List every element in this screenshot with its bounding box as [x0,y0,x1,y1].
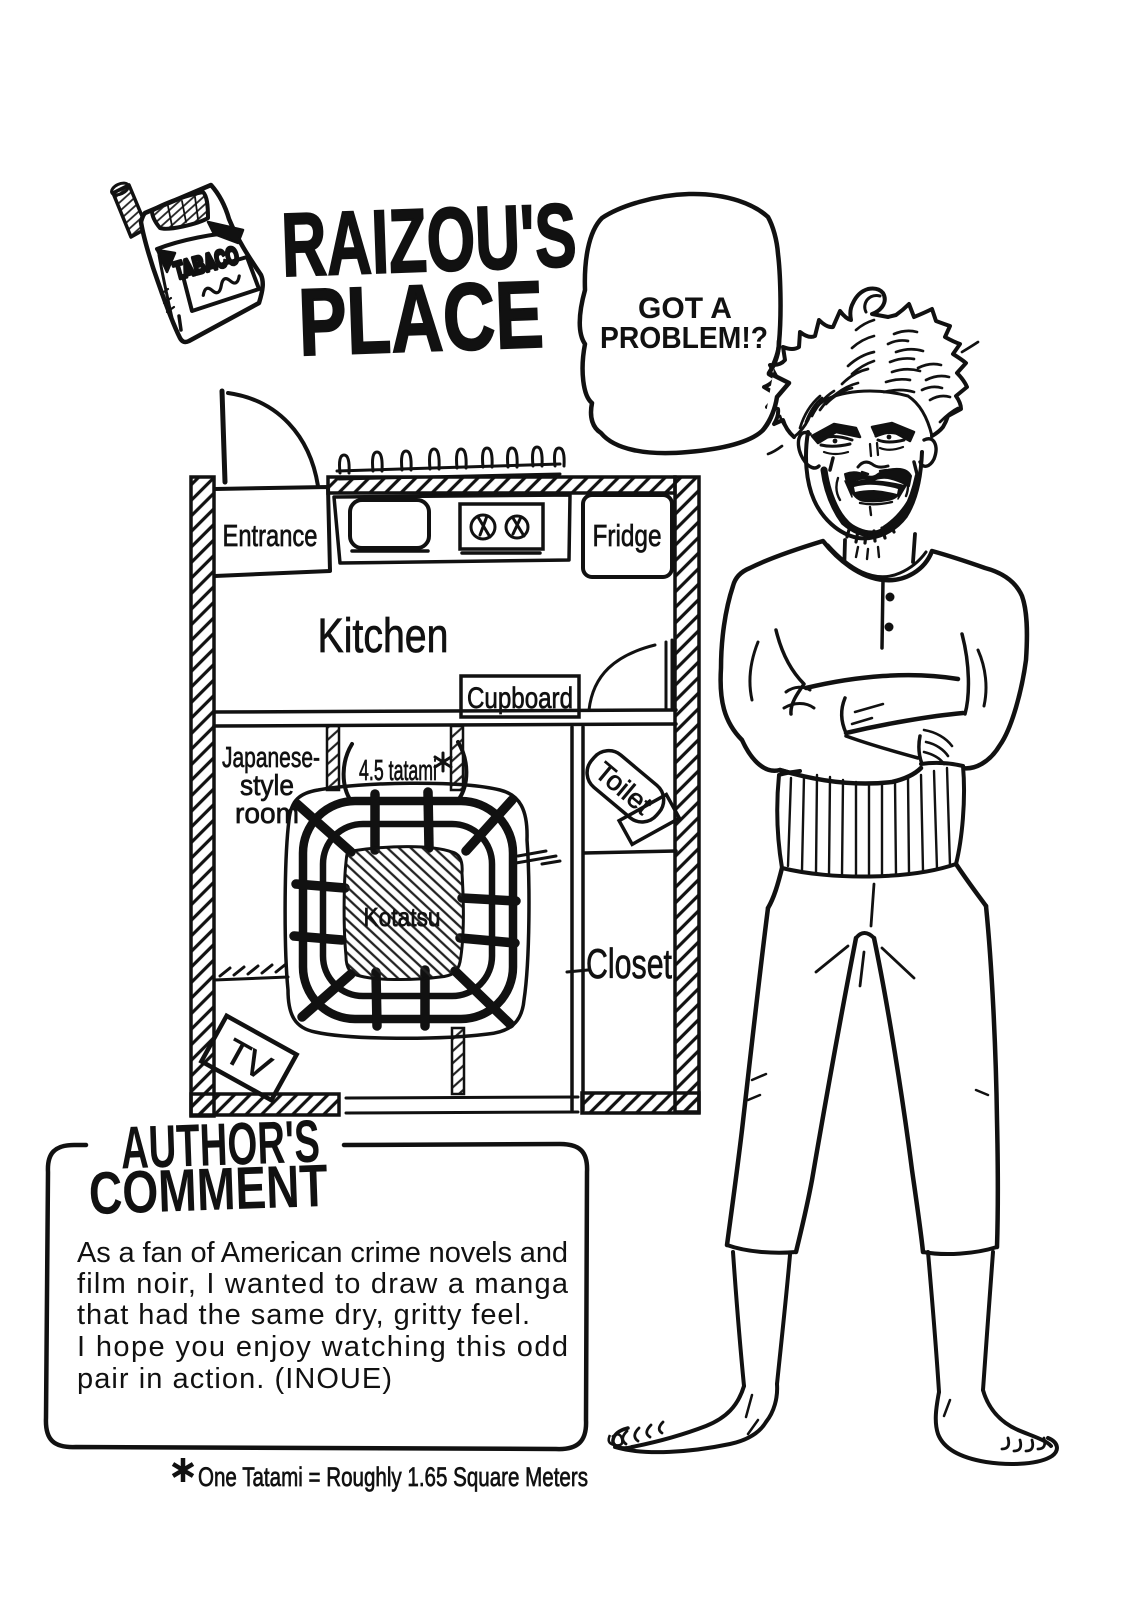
svg-text:Kotatsu: Kotatsu [364,902,441,932]
svg-text:One Tatami = Roughly 1.65 Squa: One Tatami = Roughly 1.65 Square Meters [198,1462,588,1492]
svg-text:PLACE: PLACE [297,262,546,376]
svg-text:Closet: Closet [586,940,672,987]
svg-text:I hope you enjoy watching this: I hope you enjoy watching this odd [77,1331,568,1363]
svg-text:pair in action. (INOUE): pair in action. (INOUE) [77,1363,392,1395]
svg-text:Entrance: Entrance [223,518,318,553]
svg-text:Kitchen: Kitchen [318,610,449,663]
svg-text:COMMENT: COMMENT [88,1152,329,1227]
svg-text:As a fan of American crime nov: As a fan of American crime novels and [77,1237,568,1269]
svg-text:that had the same dry, gritty: that had the same dry, gritty feel. [77,1299,530,1331]
svg-text:Fridge: Fridge [593,518,662,553]
svg-text:PROBLEM!?: PROBLEM!? [600,320,768,355]
svg-text:film noir, I wanted to draw a: film noir, I wanted to draw a manga [77,1268,569,1300]
